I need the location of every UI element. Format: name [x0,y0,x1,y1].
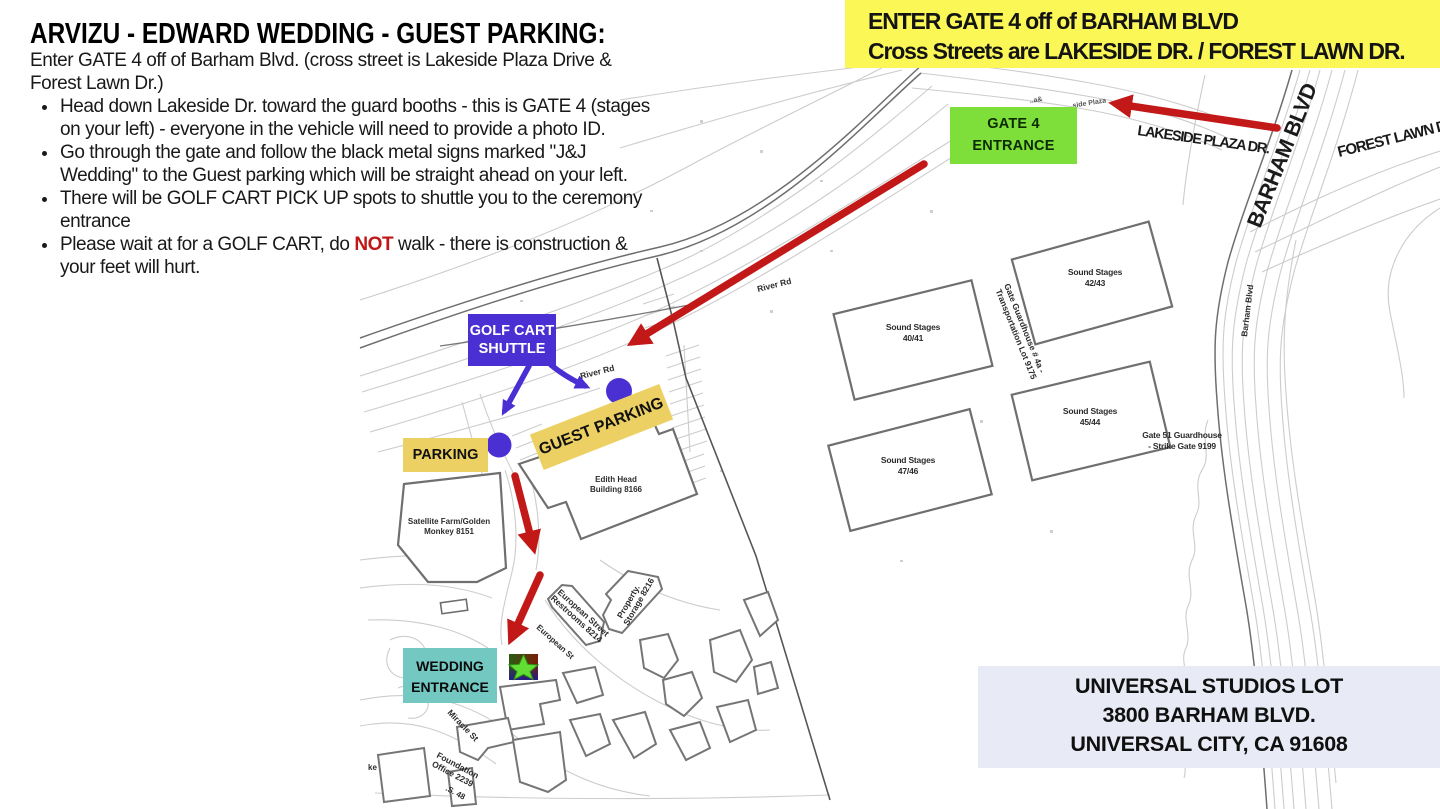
svg-text:LAKESIDE PLAZA DR.: LAKESIDE PLAZA DR. [1136,123,1271,157]
svg-text:Monkey 8151: Monkey 8151 [424,527,474,536]
svg-text:Satellite Farm/Golden: Satellite Farm/Golden [408,517,490,526]
svg-text:River Rd: River Rd [579,363,615,381]
svg-text:Sound Stages: Sound Stages [881,455,936,465]
svg-text:FOREST LAWN DR: FOREST LAWN DR [1336,115,1440,161]
svg-text:European St: European St [535,623,576,661]
svg-text:45/44: 45/44 [1080,417,1101,427]
svg-text:Edith Head: Edith Head [595,475,637,484]
svg-text:Building 8166: Building 8166 [590,485,643,494]
svg-text:Sound Stages: Sound Stages [1068,267,1123,277]
svg-text:47/46: 47/46 [898,466,919,476]
svg-text:- Strike Gate 9199: - Strike Gate 9199 [1148,441,1216,451]
svg-text:Barham Blvd: Barham Blvd [1239,284,1255,337]
svg-text:Sound Stages: Sound Stages [886,322,941,332]
svg-text:ke: ke [368,763,377,772]
svg-text:42/43: 42/43 [1085,278,1106,288]
svg-text:Sound Stages: Sound Stages [1063,406,1118,416]
svg-text:40/41: 40/41 [903,333,924,343]
svg-text:Gate 51 Guardhouse: Gate 51 Guardhouse [1142,430,1222,440]
svg-text:..a&: ..a& [1029,96,1043,105]
svg-text:River Rd: River Rd [756,276,792,294]
